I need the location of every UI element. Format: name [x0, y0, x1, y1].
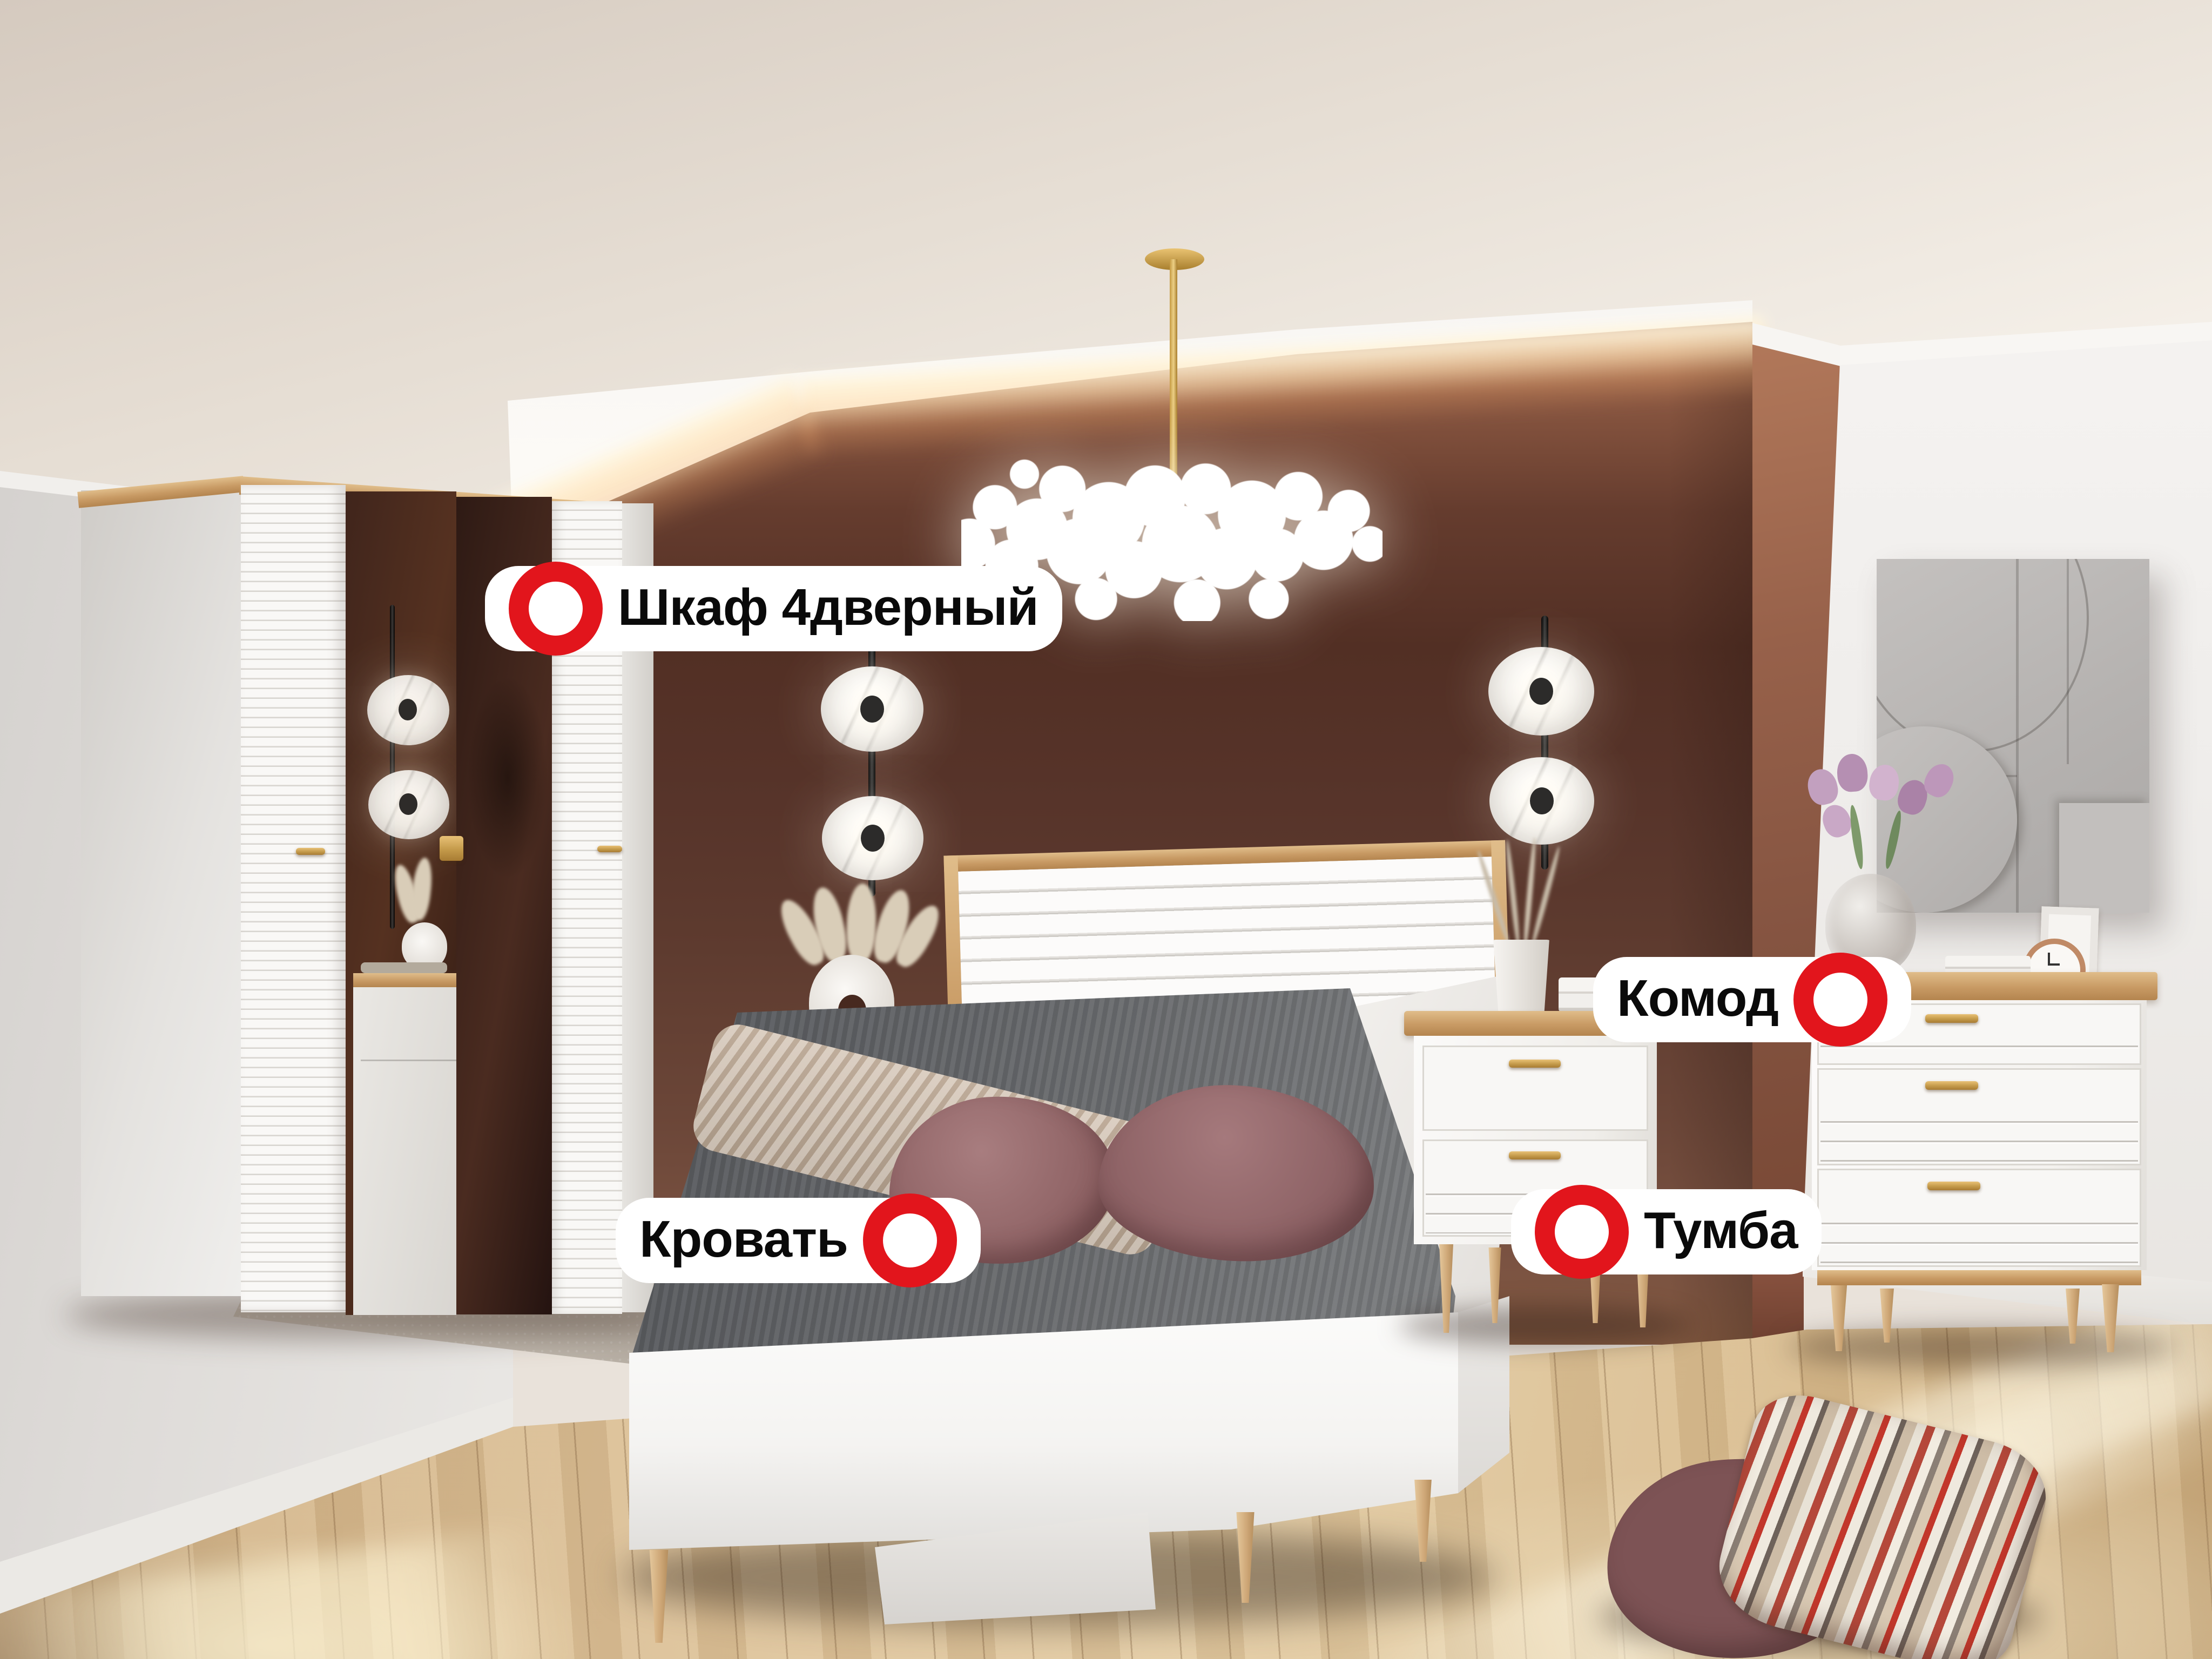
hotspot-nightstand[interactable]: Тумба: [1511, 1189, 1822, 1274]
mirror-reflected-pampas: [409, 857, 434, 921]
drawer-handle: [1509, 1151, 1561, 1159]
drawer-louver-detail: [1820, 1206, 2138, 1264]
mirror-reflected-drawer-seam: [361, 1060, 456, 1061]
mirror-reflected-disc: [368, 770, 449, 839]
sconce-light-dot: [1530, 787, 1554, 814]
hotspot-label: Комод: [1617, 973, 1778, 1024]
hotspot-marker-icon[interactable]: [1535, 1185, 1629, 1279]
hotspot-label: Шкаф 4дверный: [618, 582, 1038, 633]
wardrobe-handle: [440, 836, 463, 861]
hotspot-label: Тумба: [1644, 1205, 1798, 1257]
mirror-shadow-disc: [467, 675, 548, 880]
drawer-handle: [1927, 1182, 1980, 1190]
art-arc-shape: [1877, 559, 2089, 752]
dried-sprig: [1505, 839, 1521, 945]
wardrobe-handle: [597, 846, 622, 852]
drawer-handle: [1925, 1014, 1978, 1023]
dresser-floor-shadow: [1788, 1328, 2176, 1366]
nightstand-drawer: [1422, 1046, 1648, 1131]
tulip-leaf: [1848, 804, 1866, 869]
hotspot-marker-icon[interactable]: [863, 1193, 957, 1287]
sconce-disc: [821, 666, 923, 752]
mirror-reflected-sconce-rod: [390, 605, 395, 929]
decor-tulip: [1818, 801, 1856, 841]
art-seam: [2067, 559, 2069, 764]
hotspot-marker-icon[interactable]: [1793, 953, 1887, 1047]
dried-sprig: [1530, 846, 1562, 944]
hotspot-dresser[interactable]: Комод: [1593, 957, 1911, 1042]
dresser-base-strip: [1817, 1270, 2141, 1285]
mirror-reflected-tray: [361, 962, 447, 973]
hotspot-marker-icon[interactable]: [509, 562, 603, 656]
clock-hand: [2049, 963, 2060, 966]
drawer-handle: [1925, 1081, 1978, 1090]
dresser: [1771, 745, 2182, 1382]
bedroom-scene: Шкаф 4дверный Кровать Тумба Комод: [0, 0, 2212, 1659]
hotspot-bed[interactable]: Кровать: [616, 1198, 981, 1283]
drawer-louver-detail: [1820, 1105, 2138, 1162]
hotspot-label: Кровать: [639, 1213, 848, 1265]
wardrobe-louver-door: [241, 485, 346, 1312]
mirror-reflected-dot: [399, 699, 417, 720]
wardrobe-side-panel: [81, 490, 241, 1296]
tulip-leaf: [1883, 810, 1904, 870]
sconce-disc: [1488, 647, 1594, 736]
decor-tulip: [1804, 766, 1841, 807]
wardrobe-mirror-door: [346, 491, 456, 1315]
dried-sprig: [1475, 849, 1510, 943]
sconce-light-dot: [860, 696, 884, 723]
dresser-drawer: [1817, 1169, 2141, 1267]
dresser-drawer: [1817, 1068, 2141, 1165]
mirror-reflected-nightstand-top: [353, 973, 456, 987]
mirror-reflected-dot: [399, 793, 417, 815]
decor-tulip: [1867, 763, 1901, 802]
nightstand-floor-shadow: [1399, 1307, 1690, 1345]
decor-tulip: [1836, 753, 1869, 793]
hotspot-wardrobe[interactable]: Шкаф 4дверный: [485, 566, 1062, 651]
decor-plant-pot: [1489, 940, 1553, 1013]
wardrobe-handle: [296, 848, 325, 855]
sconce-light-dot: [1529, 678, 1553, 705]
mirror-reflected-nightstand: [353, 973, 456, 1315]
mirror-reflected-disc: [367, 675, 449, 745]
drawer-handle: [1509, 1060, 1561, 1068]
